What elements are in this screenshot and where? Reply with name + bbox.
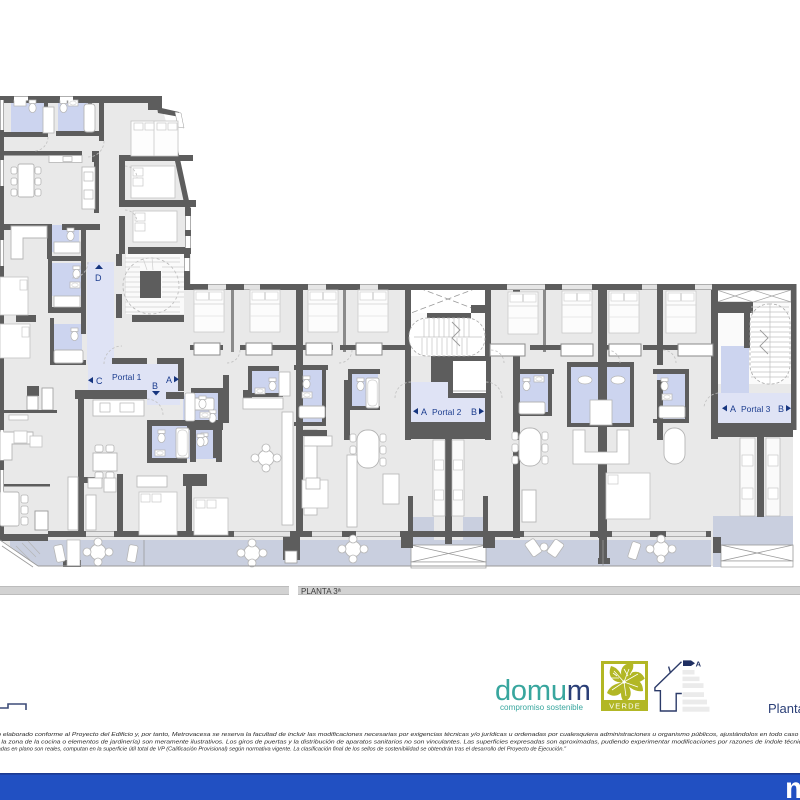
svg-text:compromiso sostenible: compromiso sostenible xyxy=(500,703,584,712)
svg-text:m: m xyxy=(785,772,800,800)
svg-text:A: A xyxy=(166,375,172,385)
svg-text:B: B xyxy=(152,381,158,391)
svg-text:A: A xyxy=(696,660,702,669)
svg-text:C: C xyxy=(96,376,103,386)
svg-text:B: B xyxy=(778,404,784,414)
svg-text:A: A xyxy=(730,404,736,414)
svg-text:lejadas en plano son reales, c: lejadas en plano son reales, computan en… xyxy=(0,747,567,753)
svg-text:B: B xyxy=(471,407,477,417)
svg-text:Portal 3: Portal 3 xyxy=(741,404,771,414)
svg-text:D: D xyxy=(95,273,102,283)
svg-text:A: A xyxy=(421,407,427,417)
svg-text:Portal 2: Portal 2 xyxy=(432,407,462,417)
svg-text:PLANTA 3ª: PLANTA 3ª xyxy=(301,587,341,596)
svg-text:Portal 1: Portal 1 xyxy=(112,372,142,382)
svg-text:ido elaborado conforme al Proy: ido elaborado conforme al Proyecto del E… xyxy=(0,732,800,738)
svg-text:VERDE: VERDE xyxy=(609,702,641,711)
svg-text:Planta 3ª: Planta 3ª xyxy=(768,701,800,716)
svg-text:en la zona de la cocina o elem: en la zona de la cocina o elementos de j… xyxy=(0,740,800,746)
